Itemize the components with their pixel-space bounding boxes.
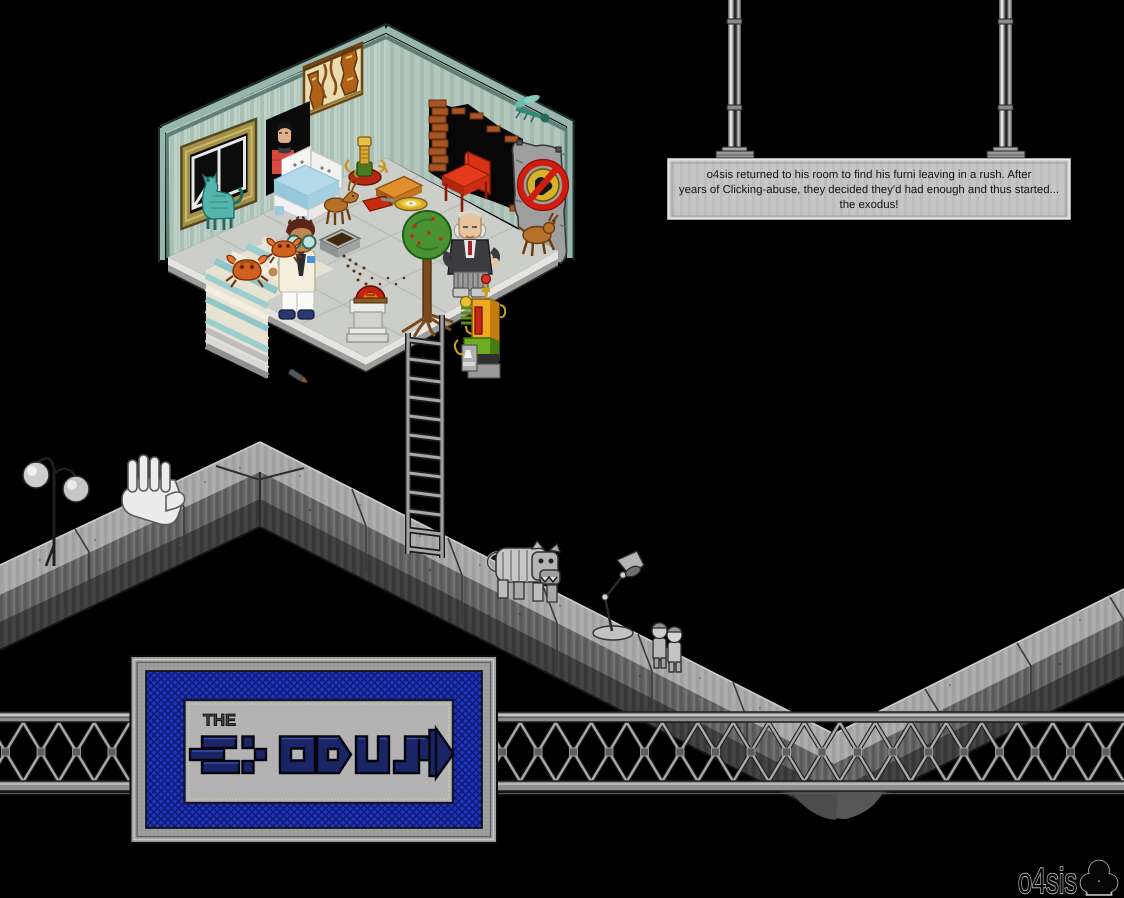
svg-text:o4sis: o4sis — [1018, 860, 1077, 898]
svg-text:years of Clicking-abuse, they: years of Clicking-abuse, they decided th… — [679, 184, 1059, 196]
svg-text:THE: THE — [203, 712, 236, 730]
svg-text:the exodus!: the exodus! — [840, 199, 899, 211]
svg-text:o4sis returned to his room to: o4sis returned to his room to find his f… — [707, 169, 1032, 181]
